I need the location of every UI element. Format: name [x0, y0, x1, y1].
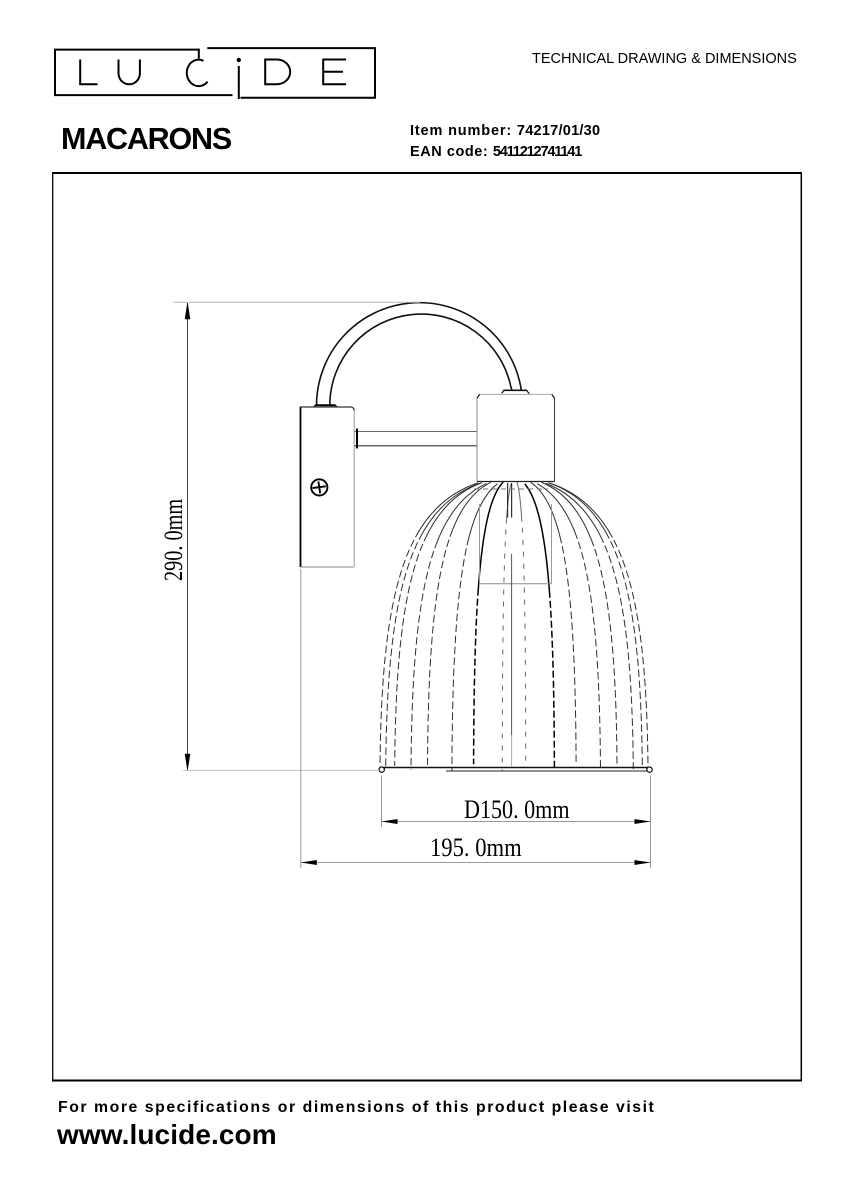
svg-text:195. 0mm: 195. 0mm — [430, 834, 522, 863]
svg-text:D150. 0mm: D150. 0mm — [464, 796, 570, 824]
svg-text:290. 0mm: 290. 0mm — [160, 499, 189, 581]
